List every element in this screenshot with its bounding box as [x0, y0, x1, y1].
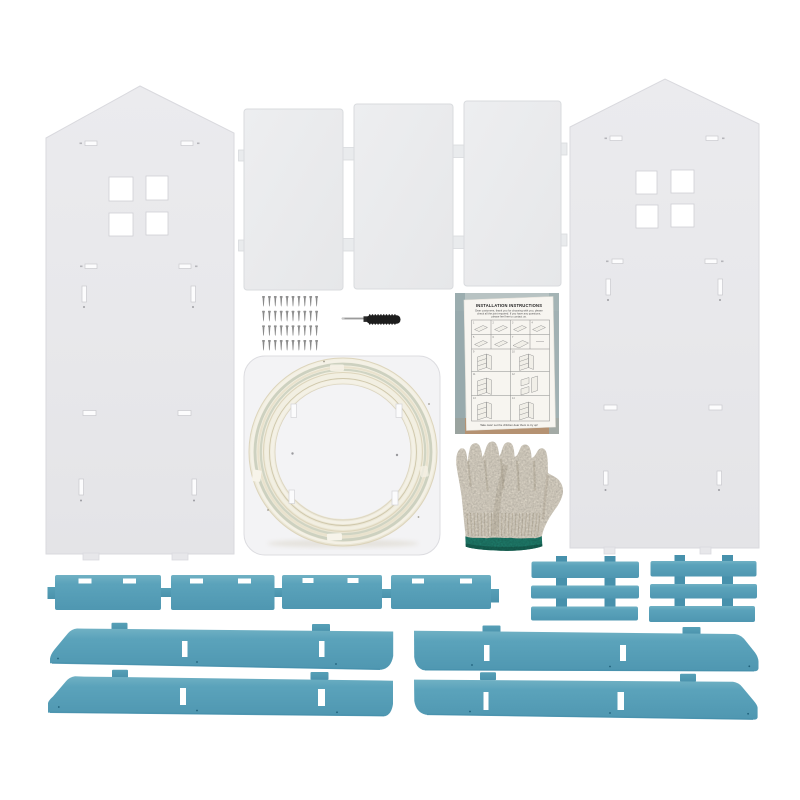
svg-text:please feel free to contact us: please feel free to contact us.: [491, 314, 526, 318]
svg-text:Take care! Let the children de: Take care! Let the children dear them to…: [480, 423, 538, 427]
svg-text:INSTALLATION INSTRUCTIONS: INSTALLATION INSTRUCTIONS: [476, 303, 542, 308]
